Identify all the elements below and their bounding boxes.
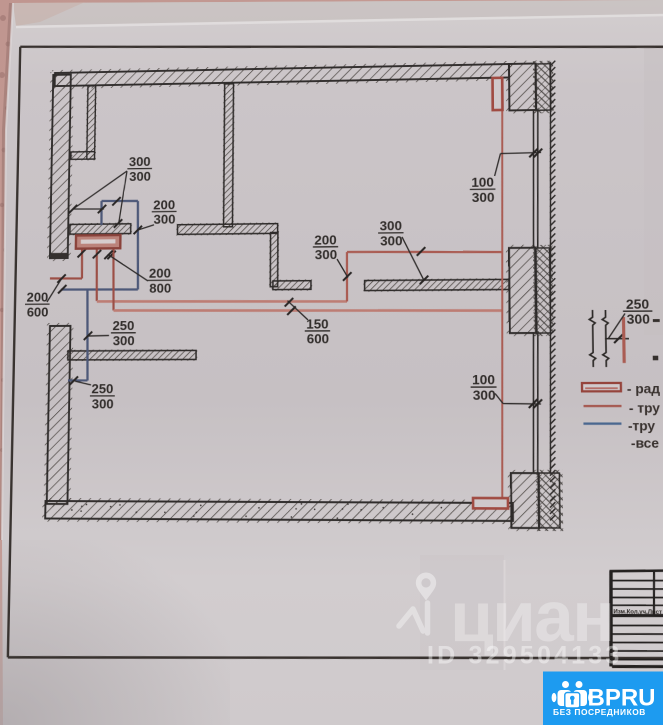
svg-text:ID 329504133: ID 329504133	[427, 642, 622, 670]
svg-text:БЕЗ ПОСРЕДНИКОВ: БЕЗ ПОСРЕДНИКОВ	[553, 707, 646, 717]
